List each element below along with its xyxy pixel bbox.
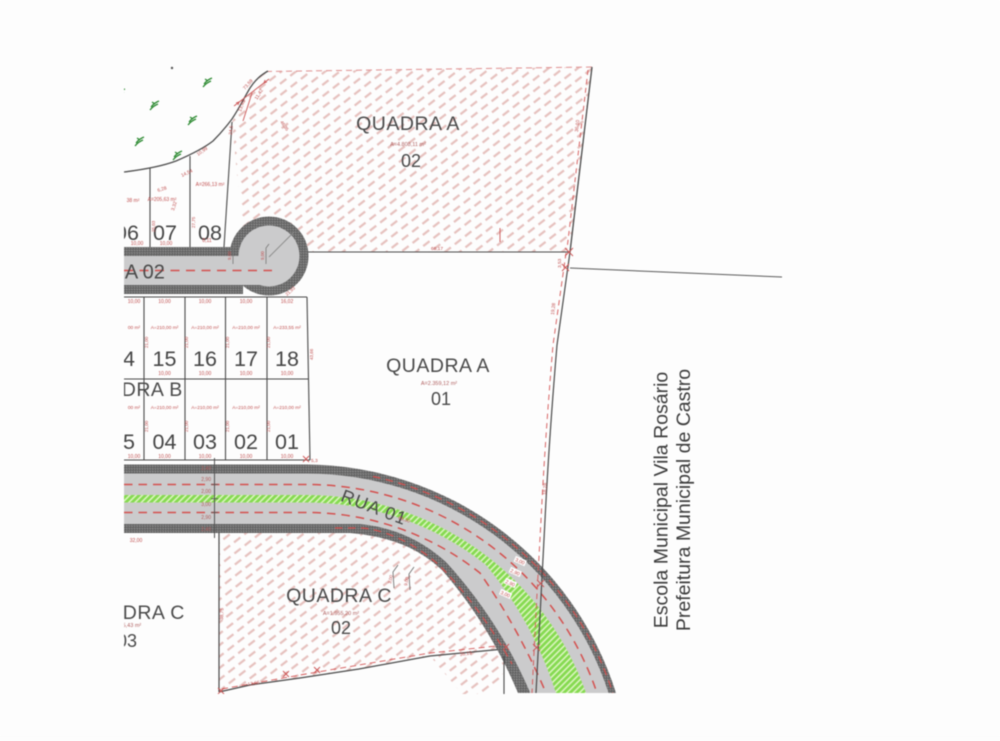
svg-text:A=210,00 m²: A=210,00 m² — [232, 325, 260, 331]
svg-text:18,28: 18,28 — [542, 482, 549, 495]
svg-text:02: 02 — [331, 618, 351, 638]
svg-text:10,00: 10,00 — [128, 299, 141, 305]
svg-text:21,00: 21,00 — [144, 336, 149, 348]
svg-text:2,40: 2,40 — [201, 527, 211, 533]
svg-text:Prefeitura Municipal de Castro: Prefeitura Municipal de Castro — [673, 369, 695, 631]
svg-text:24,5: 24,5 — [228, 125, 235, 135]
svg-text:38,75: 38,75 — [219, 608, 225, 621]
svg-text:2,40: 2,40 — [201, 466, 211, 472]
svg-text:10,00: 10,00 — [158, 299, 171, 305]
svg-text:10,00: 10,00 — [128, 454, 141, 460]
svg-text:10,00: 10,00 — [281, 371, 294, 377]
svg-text:21,00: 21,00 — [184, 420, 189, 432]
svg-text:A=210,00 m²: A=210,00 m² — [151, 405, 179, 411]
svg-text:16: 16 — [193, 347, 217, 371]
svg-text:A=266,13 m²: A=266,13 m² — [196, 182, 225, 188]
svg-text:27,75: 27,75 — [191, 216, 196, 228]
svg-text:A=1.955,20 m²: A=1.955,20 m² — [323, 611, 359, 617]
svg-text:Escola Municipal Vila Rosário: Escola Municipal Vila Rosário — [651, 372, 673, 629]
svg-text:43,66: 43,66 — [309, 348, 314, 360]
svg-text:10,00: 10,00 — [131, 241, 144, 247]
svg-text:A=4.808,11 m²: A=4.808,11 m² — [390, 142, 426, 148]
svg-text:8,11: 8,11 — [202, 238, 212, 244]
svg-text:21,00: 21,00 — [144, 420, 149, 432]
svg-text:15: 15 — [153, 347, 177, 371]
svg-text:A=2.359,12 m²: A=2.359,12 m² — [421, 381, 457, 387]
svg-text:21,00: 21,00 — [266, 420, 271, 432]
svg-text:32,00: 32,00 — [130, 538, 143, 544]
svg-text:01: 01 — [431, 389, 451, 409]
svg-text:A=210,00 m²: A=210,00 m² — [191, 405, 219, 411]
svg-text:2,90: 2,90 — [201, 515, 211, 521]
svg-text:00 m²: 00 m² — [128, 405, 141, 411]
svg-text:10,00: 10,00 — [160, 241, 173, 247]
svg-text:9,00: 9,00 — [260, 251, 265, 260]
svg-text:21,00: 21,00 — [225, 336, 230, 348]
svg-text:10,00: 10,00 — [199, 299, 212, 305]
svg-text:10,00: 10,00 — [158, 454, 171, 460]
svg-text:2,00: 2,00 — [201, 489, 211, 495]
svg-text:A=233,55 m²: A=233,55 m² — [273, 325, 301, 331]
svg-text:A=210,00 m²: A=210,00 m² — [191, 325, 219, 331]
svg-text:18: 18 — [275, 347, 299, 371]
svg-text:10,00: 10,00 — [240, 371, 253, 377]
svg-text:17: 17 — [234, 347, 258, 371]
svg-text:03: 03 — [193, 430, 217, 454]
svg-text:25,03: 25,03 — [151, 220, 156, 232]
svg-text:QUADRA A: QUADRA A — [356, 113, 460, 135]
svg-text:2,90: 2,90 — [201, 477, 211, 483]
svg-text:21,00: 21,00 — [184, 336, 189, 348]
svg-text:04: 04 — [153, 430, 177, 454]
svg-text:10,00: 10,00 — [281, 454, 294, 460]
svg-text:00 m²: 00 m² — [128, 325, 141, 331]
svg-text:01: 01 — [275, 430, 299, 454]
svg-text:10,00: 10,00 — [240, 299, 253, 305]
svg-text:10,00: 10,00 — [199, 371, 212, 377]
svg-text:A=210,00 m²: A=210,00 m² — [151, 325, 179, 331]
svg-text:QUADRA A: QUADRA A — [386, 355, 490, 377]
svg-text:A=205,63 m²: A=205,63 m² — [148, 197, 177, 203]
svg-text:5,3: 5,3 — [311, 458, 318, 464]
svg-text:21,00: 21,00 — [225, 420, 230, 432]
svg-text:21,00: 21,00 — [266, 336, 271, 348]
svg-text:10,00: 10,00 — [158, 371, 171, 377]
svg-text:16,02: 16,02 — [281, 299, 294, 305]
svg-text:10,00: 10,00 — [240, 454, 253, 460]
svg-text:3,00: 3,00 — [201, 502, 211, 508]
svg-text:68,17: 68,17 — [431, 246, 443, 252]
svg-text:02: 02 — [234, 430, 258, 454]
svg-text:10,00: 10,00 — [199, 454, 212, 460]
svg-text:9,00: 9,00 — [227, 251, 232, 260]
svg-text:3,53: 3,53 — [557, 258, 563, 268]
svg-text:A=210,00 m²: A=210,00 m² — [232, 405, 260, 411]
svg-text:02: 02 — [401, 151, 421, 171]
svg-text:A=210,00 m²: A=210,00 m² — [273, 405, 301, 411]
svg-text:QUADRA C: QUADRA C — [286, 585, 392, 607]
svg-text:38 m²: 38 m² — [127, 198, 140, 204]
